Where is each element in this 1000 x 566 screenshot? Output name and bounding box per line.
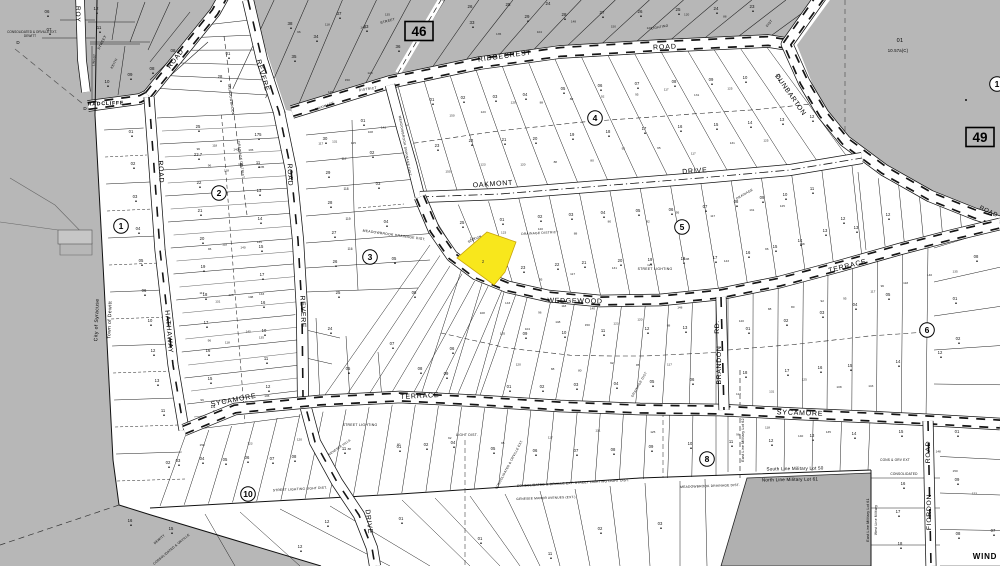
svg-text:117: 117 <box>736 392 741 396</box>
svg-text:88: 88 <box>574 231 578 235</box>
svg-text:131: 131 <box>612 266 617 270</box>
svg-text:14: 14 <box>258 216 263 221</box>
svg-text:88: 88 <box>768 307 772 311</box>
svg-text:135: 135 <box>826 430 831 434</box>
svg-text:96: 96 <box>736 433 740 437</box>
svg-text:27: 27 <box>332 230 337 235</box>
svg-text:WEDGEWOOD: WEDGEWOOD <box>547 298 602 306</box>
svg-text:01: 01 <box>953 296 958 301</box>
svg-text:11: 11 <box>810 186 815 191</box>
svg-text:123: 123 <box>367 71 372 75</box>
svg-text:17: 17 <box>260 272 265 277</box>
svg-text:49: 49 <box>972 130 987 145</box>
svg-text:08: 08 <box>150 66 155 71</box>
svg-text:15: 15 <box>848 363 853 368</box>
svg-text:05: 05 <box>392 256 397 261</box>
svg-text:143: 143 <box>868 384 873 388</box>
svg-text:17: 17 <box>642 126 647 131</box>
svg-text:CONSOLIDATED: CONSOLIDATED <box>890 472 918 476</box>
svg-text:135: 135 <box>264 394 269 398</box>
svg-text:18: 18 <box>606 129 611 134</box>
svg-text:10: 10 <box>562 330 567 335</box>
svg-text:12: 12 <box>886 212 891 217</box>
svg-text:80: 80 <box>590 158 594 162</box>
svg-text:02: 02 <box>461 95 466 100</box>
svg-text:West Line Military: West Line Military <box>874 505 878 535</box>
svg-text:06: 06 <box>450 346 455 351</box>
svg-text:95: 95 <box>501 441 505 445</box>
svg-text:125: 125 <box>727 86 732 90</box>
svg-text:08: 08 <box>672 79 677 84</box>
svg-text:07: 07 <box>574 448 579 453</box>
svg-text:11: 11 <box>161 408 166 413</box>
svg-text:09: 09 <box>444 371 449 376</box>
svg-text:17: 17 <box>896 509 901 514</box>
svg-text:2: 2 <box>217 188 222 198</box>
svg-text:123: 123 <box>481 110 486 114</box>
svg-text:06: 06 <box>142 288 147 293</box>
svg-text:11: 11 <box>264 356 269 361</box>
svg-text:28: 28 <box>562 12 567 17</box>
svg-text:120: 120 <box>511 101 516 105</box>
svg-text:02: 02 <box>540 384 545 389</box>
svg-text:143: 143 <box>724 259 729 263</box>
svg-text:ROAD: ROAD <box>653 43 677 51</box>
svg-text:17: 17 <box>713 255 718 260</box>
svg-text:150: 150 <box>445 170 450 174</box>
svg-text:125: 125 <box>650 430 655 434</box>
svg-text:92: 92 <box>601 94 605 98</box>
svg-text:120: 120 <box>297 438 302 442</box>
svg-text:16: 16 <box>128 518 133 523</box>
svg-text:135: 135 <box>259 165 264 169</box>
svg-text:120: 120 <box>684 13 689 17</box>
svg-text:131: 131 <box>215 299 220 303</box>
svg-text:38: 38 <box>288 21 293 26</box>
svg-text:12: 12 <box>325 519 330 524</box>
svg-text:08: 08 <box>418 366 423 371</box>
svg-text:28: 28 <box>218 74 223 79</box>
svg-text:19: 19 <box>570 132 575 137</box>
svg-text:02: 02 <box>784 318 789 323</box>
svg-text:120: 120 <box>516 363 521 367</box>
svg-text:135: 135 <box>248 148 253 152</box>
svg-text:96: 96 <box>200 398 204 402</box>
svg-text:10: 10 <box>148 318 153 323</box>
svg-text:88: 88 <box>551 367 555 371</box>
svg-text:06: 06 <box>669 207 674 212</box>
svg-text:120: 120 <box>520 163 525 167</box>
svg-text:34: 34 <box>314 34 319 39</box>
svg-text:05: 05 <box>139 258 144 263</box>
svg-text:26: 26 <box>468 4 473 9</box>
svg-text:27: 27 <box>600 10 605 15</box>
svg-text:13: 13 <box>780 117 785 122</box>
svg-text:118: 118 <box>800 242 805 246</box>
svg-text:150: 150 <box>953 469 958 473</box>
svg-text:07: 07 <box>390 341 395 346</box>
svg-text:FIORDON: FIORDON <box>926 494 933 530</box>
svg-text:20: 20 <box>533 136 538 141</box>
svg-text:25: 25 <box>506 2 511 7</box>
svg-text:25: 25 <box>460 220 465 225</box>
svg-text:07: 07 <box>991 528 996 533</box>
svg-text:80: 80 <box>570 97 574 101</box>
svg-text:143: 143 <box>505 301 510 305</box>
svg-text:20: 20 <box>618 258 623 263</box>
svg-text:WIND: WIND <box>973 552 998 561</box>
svg-text:119: 119 <box>345 217 350 221</box>
svg-text:92: 92 <box>448 436 452 440</box>
svg-text:36: 36 <box>396 44 401 49</box>
svg-text:150: 150 <box>200 443 205 447</box>
svg-text:02: 02 <box>370 150 375 155</box>
svg-text:11: 11 <box>729 439 734 444</box>
svg-text:104: 104 <box>537 30 542 34</box>
svg-text:03: 03 <box>569 212 574 217</box>
svg-text:23: 23 <box>435 143 440 148</box>
svg-text:140: 140 <box>246 329 251 333</box>
svg-text:10: 10 <box>688 441 693 446</box>
svg-text:117: 117 <box>691 151 696 155</box>
svg-text:04: 04 <box>384 219 389 224</box>
svg-text:North Line Military Lot 61: North Line Military Lot 61 <box>762 477 819 483</box>
svg-text:REVERE: REVERE <box>298 295 306 328</box>
svg-text:117: 117 <box>318 141 323 145</box>
svg-text:DEWITT: DEWITT <box>24 34 36 38</box>
svg-text:125: 125 <box>802 378 807 382</box>
svg-text:ROAD: ROAD <box>156 160 164 183</box>
svg-text:12: 12 <box>769 438 774 443</box>
svg-text:13: 13 <box>810 433 815 438</box>
svg-text:125: 125 <box>351 141 356 145</box>
svg-text:118: 118 <box>325 23 330 27</box>
svg-text:05: 05 <box>636 208 641 213</box>
svg-text:108: 108 <box>836 385 841 389</box>
svg-text:09: 09 <box>128 72 133 77</box>
svg-text:118: 118 <box>222 242 227 246</box>
svg-text:123: 123 <box>501 231 506 235</box>
svg-text:11: 11 <box>548 551 553 556</box>
svg-text:175: 175 <box>255 132 263 137</box>
svg-text:25: 25 <box>196 124 201 129</box>
svg-text:09: 09 <box>955 477 960 482</box>
svg-text:131: 131 <box>730 141 735 145</box>
svg-text:03: 03 <box>376 181 381 186</box>
svg-text:23: 23 <box>750 4 755 9</box>
svg-text:04: 04 <box>523 92 528 97</box>
svg-text:21: 21 <box>502 137 507 142</box>
svg-text:3: 3 <box>368 252 373 262</box>
svg-text:118: 118 <box>903 281 908 285</box>
svg-text:09: 09 <box>709 77 714 82</box>
svg-text:116: 116 <box>347 247 352 251</box>
svg-text:ROY: ROY <box>74 6 81 23</box>
svg-text:01: 01 <box>226 51 231 56</box>
svg-text:21: 21 <box>582 260 587 265</box>
svg-text:13: 13 <box>683 325 688 330</box>
svg-text:17: 17 <box>204 320 209 325</box>
svg-text:140: 140 <box>233 148 238 152</box>
svg-text:13: 13 <box>155 378 160 383</box>
svg-text:12: 12 <box>810 114 815 119</box>
svg-text:5: 5 <box>680 222 685 232</box>
svg-text:02: 02 <box>538 214 543 219</box>
svg-text:08: 08 <box>292 454 297 459</box>
svg-text:35: 35 <box>292 54 297 59</box>
svg-text:135: 135 <box>500 331 505 335</box>
svg-text:06: 06 <box>690 377 695 382</box>
svg-text:ROAD: ROAD <box>925 441 932 463</box>
svg-text:123: 123 <box>613 322 618 326</box>
svg-text:117: 117 <box>710 214 715 218</box>
svg-text:95: 95 <box>539 277 543 281</box>
svg-text:24: 24 <box>714 6 719 11</box>
svg-text:96: 96 <box>297 30 301 34</box>
svg-text:13: 13 <box>823 228 828 233</box>
svg-text:8: 8 <box>705 454 710 464</box>
svg-text:14: 14 <box>852 431 857 436</box>
svg-text:117: 117 <box>870 289 875 293</box>
svg-text:STREET LIGHTING: STREET LIGHTING <box>638 267 673 271</box>
svg-text:95: 95 <box>676 211 680 215</box>
svg-text:148: 148 <box>677 305 682 309</box>
svg-text:150: 150 <box>449 113 454 117</box>
svg-text:143: 143 <box>381 125 386 129</box>
svg-text:21: 21 <box>198 208 203 213</box>
svg-text:08: 08 <box>611 447 616 452</box>
svg-text:12: 12 <box>266 384 271 389</box>
svg-text:123: 123 <box>247 442 252 446</box>
svg-text:12: 12 <box>94 6 99 11</box>
svg-text:135: 135 <box>496 32 501 36</box>
svg-text:125: 125 <box>763 139 768 143</box>
svg-text:05: 05 <box>346 366 351 371</box>
svg-text:96: 96 <box>765 247 769 251</box>
svg-text:05: 05 <box>650 379 655 384</box>
svg-text:1: 1 <box>995 79 1000 89</box>
svg-text:02: 02 <box>956 336 961 341</box>
svg-text:01: 01 <box>129 129 134 134</box>
svg-text:131: 131 <box>749 208 754 212</box>
svg-text:18: 18 <box>898 541 903 546</box>
svg-text:03: 03 <box>820 310 825 315</box>
svg-text:15: 15 <box>259 244 264 249</box>
svg-text:131: 131 <box>332 140 337 144</box>
svg-text:88: 88 <box>667 324 671 328</box>
svg-text:05: 05 <box>886 292 891 297</box>
svg-text:88: 88 <box>554 160 558 164</box>
svg-text:117: 117 <box>667 362 672 366</box>
svg-text:33: 33 <box>470 20 475 25</box>
svg-text:140: 140 <box>927 273 932 277</box>
svg-text:24: 24 <box>546 1 551 6</box>
svg-text:01: 01 <box>361 118 366 123</box>
svg-text:13: 13 <box>854 225 859 230</box>
svg-text:148: 148 <box>555 320 560 324</box>
svg-text:06: 06 <box>598 83 603 88</box>
svg-text:92: 92 <box>622 146 626 150</box>
svg-text:80: 80 <box>397 442 401 446</box>
svg-text:24: 24 <box>328 326 333 331</box>
svg-text:07: 07 <box>635 81 640 86</box>
svg-text:92: 92 <box>610 361 614 365</box>
svg-text:118: 118 <box>343 187 348 191</box>
svg-text:02: 02 <box>131 161 136 166</box>
svg-text:96: 96 <box>538 311 542 315</box>
svg-text:15: 15 <box>773 244 778 249</box>
svg-text:22: 22 <box>469 138 474 143</box>
svg-text:01: 01 <box>500 217 505 222</box>
svg-text:135: 135 <box>257 240 262 244</box>
svg-text:12: 12 <box>151 348 156 353</box>
svg-text:07: 07 <box>703 204 708 209</box>
svg-text:140: 140 <box>238 162 243 166</box>
svg-text:08: 08 <box>974 254 979 259</box>
svg-text:20: 20 <box>200 236 205 241</box>
svg-text:01: 01 <box>897 38 904 44</box>
svg-text:131: 131 <box>595 429 600 433</box>
svg-text:120: 120 <box>637 318 642 322</box>
svg-text:08: 08 <box>956 531 961 536</box>
svg-text:148: 148 <box>936 450 941 454</box>
svg-text:131: 131 <box>769 389 774 393</box>
svg-text:01: 01 <box>430 97 435 102</box>
svg-text:04: 04 <box>200 456 205 461</box>
svg-text:15: 15 <box>714 122 719 127</box>
svg-text:04: 04 <box>853 302 858 307</box>
svg-text:10: 10 <box>262 328 267 333</box>
svg-text:117: 117 <box>570 272 575 276</box>
svg-text:03: 03 <box>133 194 138 199</box>
svg-text:25: 25 <box>676 7 681 12</box>
svg-text:17: 17 <box>785 368 790 373</box>
svg-text:108: 108 <box>480 311 485 315</box>
svg-text:140: 140 <box>590 307 595 311</box>
svg-text:09: 09 <box>523 331 528 336</box>
svg-text:16: 16 <box>678 124 683 129</box>
svg-text:96: 96 <box>208 339 212 343</box>
svg-text:118: 118 <box>765 426 770 430</box>
svg-text:96: 96 <box>197 147 201 151</box>
svg-text:46: 46 <box>411 24 427 39</box>
svg-text:15: 15 <box>208 376 213 381</box>
svg-text:80: 80 <box>578 369 582 373</box>
svg-text:95: 95 <box>636 363 640 367</box>
svg-text:03: 03 <box>176 458 181 463</box>
svg-text:19: 19 <box>648 257 653 262</box>
svg-text:108: 108 <box>368 130 373 134</box>
svg-text:37: 37 <box>337 11 342 16</box>
svg-text:117: 117 <box>199 291 204 295</box>
svg-text:19: 19 <box>201 264 206 269</box>
svg-text:29: 29 <box>525 14 530 19</box>
svg-text:06: 06 <box>45 9 50 14</box>
svg-text:13: 13 <box>257 188 262 193</box>
svg-text:125: 125 <box>647 263 652 267</box>
svg-text:135: 135 <box>385 12 390 16</box>
svg-text:06: 06 <box>245 455 250 460</box>
svg-text:135: 135 <box>953 270 958 274</box>
svg-text:118: 118 <box>225 341 230 345</box>
svg-text:125: 125 <box>780 204 785 208</box>
svg-text:123: 123 <box>972 491 977 495</box>
svg-text:108: 108 <box>248 295 253 299</box>
svg-text:12: 12 <box>298 544 303 549</box>
svg-text:East Line Military Lot 62: East Line Military Lot 62 <box>741 418 745 461</box>
svg-text:88: 88 <box>540 101 544 105</box>
svg-text:148: 148 <box>571 20 576 24</box>
svg-text:STREET LIGHTING: STREET LIGHTING <box>343 423 378 427</box>
svg-text:02: 02 <box>598 526 603 531</box>
svg-text:30: 30 <box>323 136 328 141</box>
svg-text:150: 150 <box>611 24 616 28</box>
svg-text:118: 118 <box>212 143 217 147</box>
svg-text:92: 92 <box>646 220 650 224</box>
svg-text:02: 02 <box>424 442 429 447</box>
svg-text:04: 04 <box>601 210 606 215</box>
svg-text:16: 16 <box>261 300 266 305</box>
svg-text:01: 01 <box>746 326 751 331</box>
svg-text:03: 03 <box>574 382 579 387</box>
svg-text:123: 123 <box>647 26 652 30</box>
svg-text:95: 95 <box>843 296 847 300</box>
svg-text:15: 15 <box>899 429 904 434</box>
svg-text:96: 96 <box>208 164 212 168</box>
svg-text:95: 95 <box>635 92 639 96</box>
svg-text:01: 01 <box>507 384 512 389</box>
svg-text:10: 10 <box>743 75 748 80</box>
svg-text:23: 23 <box>521 265 526 270</box>
svg-text:02: 02 <box>166 460 171 465</box>
svg-text:140: 140 <box>360 26 365 30</box>
svg-text:07: 07 <box>270 456 275 461</box>
svg-text:09: 09 <box>760 195 765 200</box>
svg-text:04: 04 <box>451 440 456 445</box>
svg-text:03: 03 <box>658 521 663 526</box>
svg-text:10: 10 <box>243 489 253 499</box>
svg-text:14: 14 <box>748 120 753 125</box>
svg-text:16: 16 <box>746 250 751 255</box>
svg-text:22: 22 <box>197 180 202 185</box>
svg-text:RADCLIFFE: RADCLIFFE <box>88 100 125 107</box>
svg-text:01: 01 <box>955 429 960 434</box>
svg-text:East Line Military Lot 61: East Line Military Lot 61 <box>866 498 870 541</box>
svg-text:12: 12 <box>938 350 943 355</box>
svg-text:6: 6 <box>925 325 930 335</box>
svg-text:05: 05 <box>491 446 496 451</box>
svg-text:104: 104 <box>525 327 530 331</box>
svg-text:28: 28 <box>328 200 333 205</box>
svg-text:120: 120 <box>739 319 744 323</box>
svg-text:14: 14 <box>896 359 901 364</box>
svg-text:92: 92 <box>820 299 824 303</box>
svg-text:135: 135 <box>259 335 264 339</box>
svg-text:LIGHT DIST.: LIGHT DIST. <box>456 433 478 437</box>
svg-text:25: 25 <box>336 290 341 295</box>
svg-text:140: 140 <box>798 434 803 438</box>
svg-text:88: 88 <box>348 447 352 451</box>
svg-text:01: 01 <box>478 536 483 541</box>
svg-text:11: 11 <box>97 25 102 30</box>
svg-text:95: 95 <box>657 146 661 150</box>
svg-text:125: 125 <box>228 293 233 297</box>
svg-text:11: 11 <box>601 328 606 333</box>
svg-text:10.57a(C): 10.57a(C) <box>888 48 909 53</box>
svg-text:4: 4 <box>593 113 598 123</box>
svg-text:150: 150 <box>345 78 350 82</box>
svg-text:117: 117 <box>341 157 346 161</box>
